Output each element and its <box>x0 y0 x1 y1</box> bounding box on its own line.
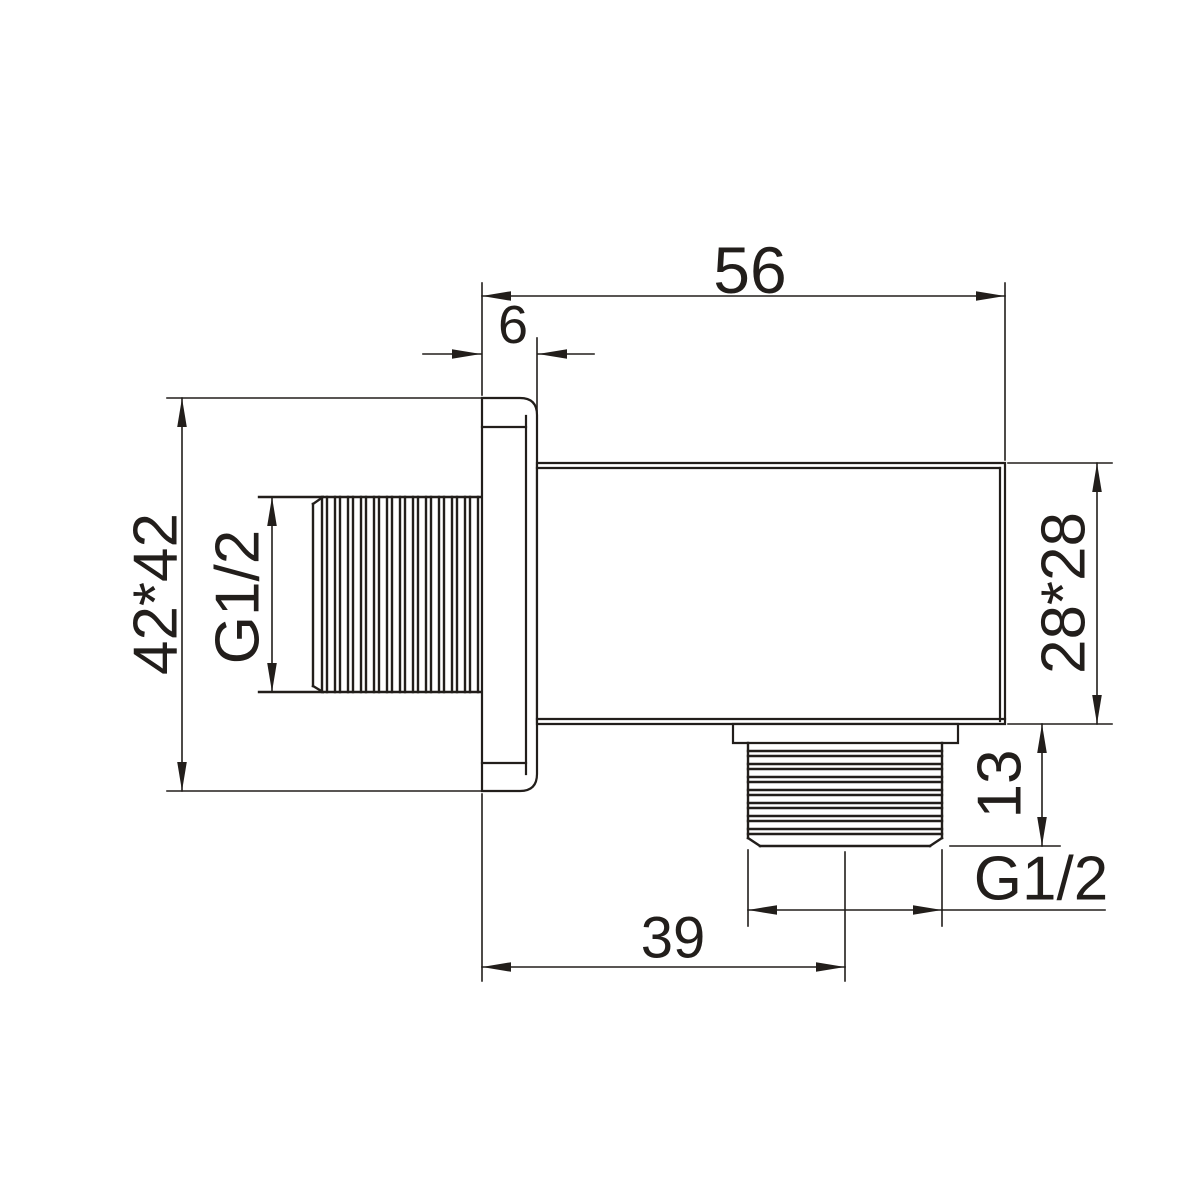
dim-label-overall-length: 56 <box>713 233 786 307</box>
dim-label-outlet-thread-length: 13 <box>966 750 1035 819</box>
flange <box>482 398 537 791</box>
body <box>537 463 1005 724</box>
dim-label-outlet-offset: 39 <box>641 906 706 971</box>
dim-label-flange-thickness: 6 <box>498 295 528 355</box>
dim-label-body-size: 28*28 <box>1030 512 1099 674</box>
dim-label-wall-thread: G1/2 <box>204 530 273 664</box>
body-outline <box>537 463 1005 724</box>
dim-label-flange-size: 42*42 <box>122 513 191 675</box>
technical-drawing: 56 6 42*42 G1/2 28*28 <box>0 0 1200 1200</box>
flange-outline <box>482 398 537 791</box>
outlet-collar <box>733 724 958 743</box>
dim-label-outlet-thread: G1/2 <box>974 845 1108 914</box>
